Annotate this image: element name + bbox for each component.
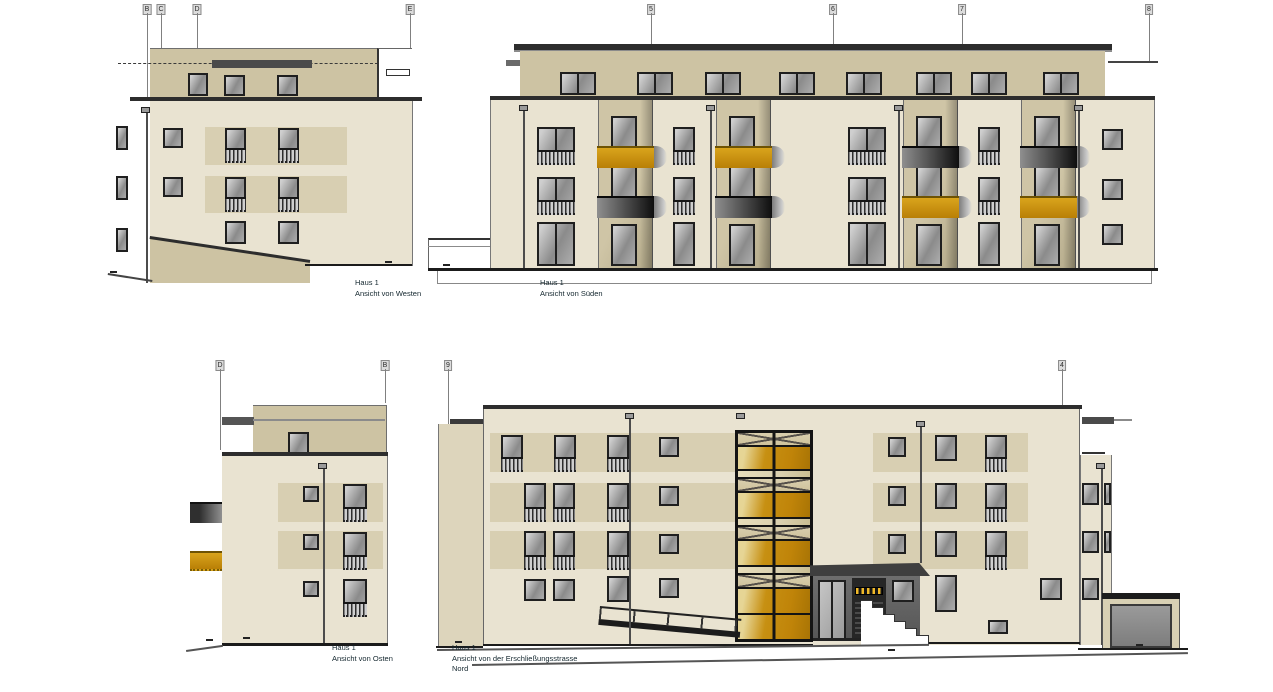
entrance-window	[892, 580, 914, 602]
juliet-railing	[848, 150, 886, 165]
grid-line	[651, 13, 652, 44]
window-band	[278, 531, 383, 569]
bay-window	[916, 116, 942, 150]
juliet-railing	[673, 150, 695, 165]
grid-line	[220, 369, 221, 450]
window-balcony-door	[501, 435, 523, 472]
roof-eaves-line	[1114, 419, 1132, 421]
bay-shadow	[945, 100, 957, 268]
bay-shadow	[640, 100, 652, 268]
stair-tower-glazing	[735, 430, 813, 642]
balcony-parapet-gray	[597, 196, 654, 218]
window	[1102, 224, 1123, 245]
window	[224, 75, 245, 96]
window-balcony-door	[553, 531, 575, 570]
window	[303, 581, 319, 597]
ground-line	[305, 264, 412, 266]
retaining-wall-line	[428, 246, 490, 247]
juliet-railing	[607, 507, 629, 522]
downpipe	[898, 111, 900, 268]
juliet-railing	[278, 148, 299, 163]
window	[278, 221, 299, 244]
juliet-railing	[343, 555, 367, 570]
bay-window-tall	[729, 224, 755, 266]
view-subtitle: Ansicht von Westen	[355, 289, 421, 300]
window-balcony-door	[985, 435, 1007, 472]
window-pair	[916, 72, 952, 95]
tower-mullion	[773, 433, 776, 639]
window	[188, 73, 208, 96]
bay-window-tall	[1034, 224, 1060, 266]
view-subtitle: Ansicht von Süden	[540, 289, 603, 300]
bay-shadow	[1063, 100, 1075, 268]
window-pair-balcony	[848, 177, 886, 215]
window	[659, 534, 679, 554]
bay-window	[611, 166, 637, 200]
balcony-parapet-gray	[902, 146, 959, 168]
view-title: Haus 1	[355, 278, 421, 289]
juliet-railing	[524, 555, 546, 570]
window-pair	[1043, 72, 1079, 95]
view-label: Haus 1 Ansicht von Westen	[355, 278, 421, 299]
window	[888, 534, 906, 554]
bay-shadow	[758, 100, 770, 268]
bay-window	[729, 166, 755, 200]
bay-window	[916, 166, 942, 200]
window	[935, 531, 957, 557]
window	[524, 579, 546, 601]
level-mark	[206, 639, 213, 641]
level-mark	[888, 649, 895, 651]
grid-line	[147, 13, 148, 101]
terrace-railing	[1082, 452, 1105, 454]
window-balcony-door	[673, 177, 695, 215]
view-label: Haus 1 Ansicht von der Erschließungsstra…	[452, 643, 577, 675]
bay-window	[1034, 166, 1060, 200]
window-balcony-door	[343, 579, 367, 617]
window	[303, 534, 319, 550]
window-balcony-door	[524, 531, 546, 570]
window	[659, 486, 679, 506]
window-balcony-door	[978, 177, 1000, 215]
window	[225, 221, 246, 244]
view-title: Haus 1	[332, 643, 393, 654]
window	[553, 579, 575, 601]
retaining-wall	[428, 238, 490, 268]
window	[659, 578, 679, 598]
balcony-parapet-gold-profile	[190, 551, 222, 571]
window-balcony-door	[607, 531, 629, 570]
juliet-railing	[343, 507, 367, 522]
window-pair-balcony	[537, 177, 575, 215]
window-balcony-door	[343, 532, 367, 570]
roof-slab-overhang	[1082, 417, 1114, 424]
window-tall	[978, 222, 1000, 266]
downpipe	[710, 111, 712, 268]
view-label: Haus 1 Ansicht von Süden	[540, 278, 603, 299]
window-tall	[673, 222, 695, 266]
window	[1102, 179, 1123, 200]
juliet-railing	[501, 457, 523, 472]
juliet-railing	[225, 148, 246, 163]
view-title: Haus 1	[540, 278, 603, 289]
slit-window	[1104, 483, 1111, 505]
balcony-parapet-gold	[715, 146, 772, 168]
canopy-slab	[212, 60, 312, 68]
juliet-railing	[278, 197, 299, 212]
window	[935, 483, 957, 509]
roof-railing-line	[1108, 61, 1158, 63]
window-balcony-door	[553, 483, 575, 522]
bay-window-tall	[916, 224, 942, 266]
view-subtitle-2: Nord	[452, 664, 577, 675]
juliet-railing	[524, 507, 546, 522]
downpipe	[523, 111, 525, 268]
juliet-railing	[673, 200, 695, 215]
window	[935, 575, 957, 612]
window-balcony-door	[225, 128, 246, 163]
balcony-parapet-gold	[597, 146, 654, 168]
window-pair	[560, 72, 596, 95]
downpipe	[146, 113, 148, 283]
window	[659, 437, 679, 457]
window-balcony-door	[978, 127, 1000, 165]
side-window	[116, 228, 128, 252]
window-balcony-door	[225, 177, 246, 212]
basement-window	[988, 620, 1008, 634]
garage-door	[1110, 604, 1172, 648]
window-balcony-door	[607, 483, 629, 522]
penthouse-wall	[253, 405, 387, 455]
level-mark	[443, 264, 450, 266]
window	[1040, 578, 1062, 600]
window	[163, 128, 183, 148]
roof-deck-band	[483, 405, 1082, 409]
window	[888, 437, 906, 457]
window	[277, 75, 298, 96]
view-subtitle: Ansicht von Osten	[332, 654, 393, 665]
juliet-railing	[985, 457, 1007, 472]
balcony-parapet-gray	[715, 196, 772, 218]
bay-window	[1034, 116, 1060, 150]
juliet-railing	[978, 150, 1000, 165]
downpipe	[1078, 111, 1080, 268]
balcony-parapet-gold	[1020, 196, 1077, 218]
juliet-railing	[343, 602, 367, 617]
view-subtitle: Ansicht von der Erschließungsstrasse	[452, 654, 577, 665]
view-title: Haus 1	[452, 643, 577, 654]
juliet-railing	[225, 197, 246, 212]
facade-lamp	[736, 413, 745, 419]
entrance-sign-lights	[855, 587, 883, 595]
window-balcony-door	[554, 435, 576, 472]
juliet-railing	[553, 555, 575, 570]
entrance-door	[818, 580, 846, 640]
window-balcony-door	[524, 483, 546, 522]
view-label: Haus 1 Ansicht von Osten	[332, 643, 393, 664]
elevation-sheet: B C D E	[0, 0, 1273, 692]
juliet-railing	[553, 507, 575, 522]
side-window	[116, 176, 128, 200]
window-balcony-door	[343, 484, 367, 522]
terrace-railing	[450, 419, 483, 424]
grid-line	[1149, 13, 1150, 62]
roof-eaves-line	[253, 419, 385, 421]
window-balcony-door	[985, 531, 1007, 570]
side-window	[116, 126, 128, 150]
downpipe	[629, 419, 631, 645]
balcony-parapet-gold	[902, 196, 959, 218]
annex-wall	[438, 424, 483, 648]
grid-line	[833, 13, 834, 44]
window	[1082, 578, 1099, 600]
level-mark	[243, 637, 250, 639]
window-pair	[779, 72, 815, 95]
juliet-railing	[607, 555, 629, 570]
bay-window	[611, 116, 637, 150]
window-pair-balcony	[848, 127, 886, 165]
window-pair	[971, 72, 1007, 95]
window-band	[278, 483, 383, 522]
window-balcony-door	[673, 127, 695, 165]
juliet-railing	[978, 200, 1000, 215]
juliet-railing	[554, 457, 576, 472]
level-mark	[385, 261, 392, 263]
juliet-railing	[607, 457, 629, 472]
window-pair-tall	[848, 222, 886, 266]
ground-line	[1078, 648, 1188, 650]
penthouse-wall	[150, 48, 377, 99]
slit-window	[1104, 531, 1111, 553]
window	[303, 486, 319, 502]
garage-roof	[1102, 593, 1180, 599]
balcony-parapet-gray-profile	[190, 502, 222, 523]
juliet-railing	[985, 555, 1007, 570]
grid-line	[385, 369, 386, 403]
window	[163, 177, 183, 197]
juliet-railing	[848, 200, 886, 215]
roof-railing	[386, 69, 410, 76]
window-pair-balcony	[537, 127, 575, 165]
window-pair	[637, 72, 673, 95]
window-pair-tall	[537, 222, 575, 266]
window-balcony-door	[607, 435, 629, 472]
window-pair	[705, 72, 741, 95]
ground-line	[929, 642, 1080, 644]
window	[607, 576, 629, 602]
window-balcony-door	[985, 483, 1007, 522]
grid-line	[962, 13, 963, 44]
juliet-railing	[537, 200, 575, 215]
juliet-railing	[537, 150, 575, 165]
window-balcony-door	[278, 128, 299, 163]
downpipe	[323, 469, 325, 645]
juliet-railing	[985, 507, 1007, 522]
bay-window	[729, 116, 755, 150]
downpipe	[920, 427, 922, 563]
grid-line	[197, 13, 198, 48]
window	[1082, 531, 1099, 553]
roof-slab-overhang	[222, 417, 254, 425]
balcony-parapet-gray	[1020, 146, 1077, 168]
window-balcony-door	[278, 177, 299, 212]
window	[1102, 129, 1123, 150]
window	[888, 486, 906, 506]
road-edge-line	[472, 652, 1188, 665]
ground-slope-line	[186, 645, 223, 652]
window	[1082, 483, 1099, 505]
bay-window-tall	[611, 224, 637, 266]
level-mark	[110, 271, 117, 273]
window-pair	[846, 72, 882, 95]
level-mark	[1136, 644, 1143, 646]
window	[935, 435, 957, 461]
